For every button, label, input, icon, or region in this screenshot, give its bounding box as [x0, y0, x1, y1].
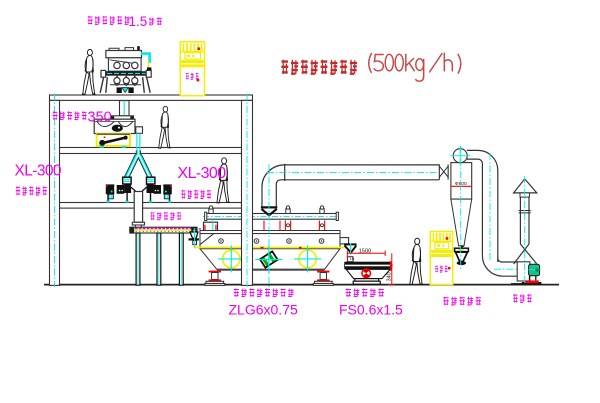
svg-text:1.5: 1.5	[129, 14, 148, 29]
svg-text:ZLG6x0.75: ZLG6x0.75	[229, 301, 298, 317]
svg-text:XL-300: XL-300	[178, 165, 227, 182]
svg-text:1500: 1500	[359, 249, 371, 255]
svg-text:XL-300: XL-300	[15, 163, 62, 180]
svg-text:FS0.6x1.5: FS0.6x1.5	[339, 301, 403, 317]
svg-text:350: 350	[88, 109, 112, 125]
svg-text:340: 340	[386, 272, 392, 281]
svg-text:15: 15	[350, 256, 355, 261]
